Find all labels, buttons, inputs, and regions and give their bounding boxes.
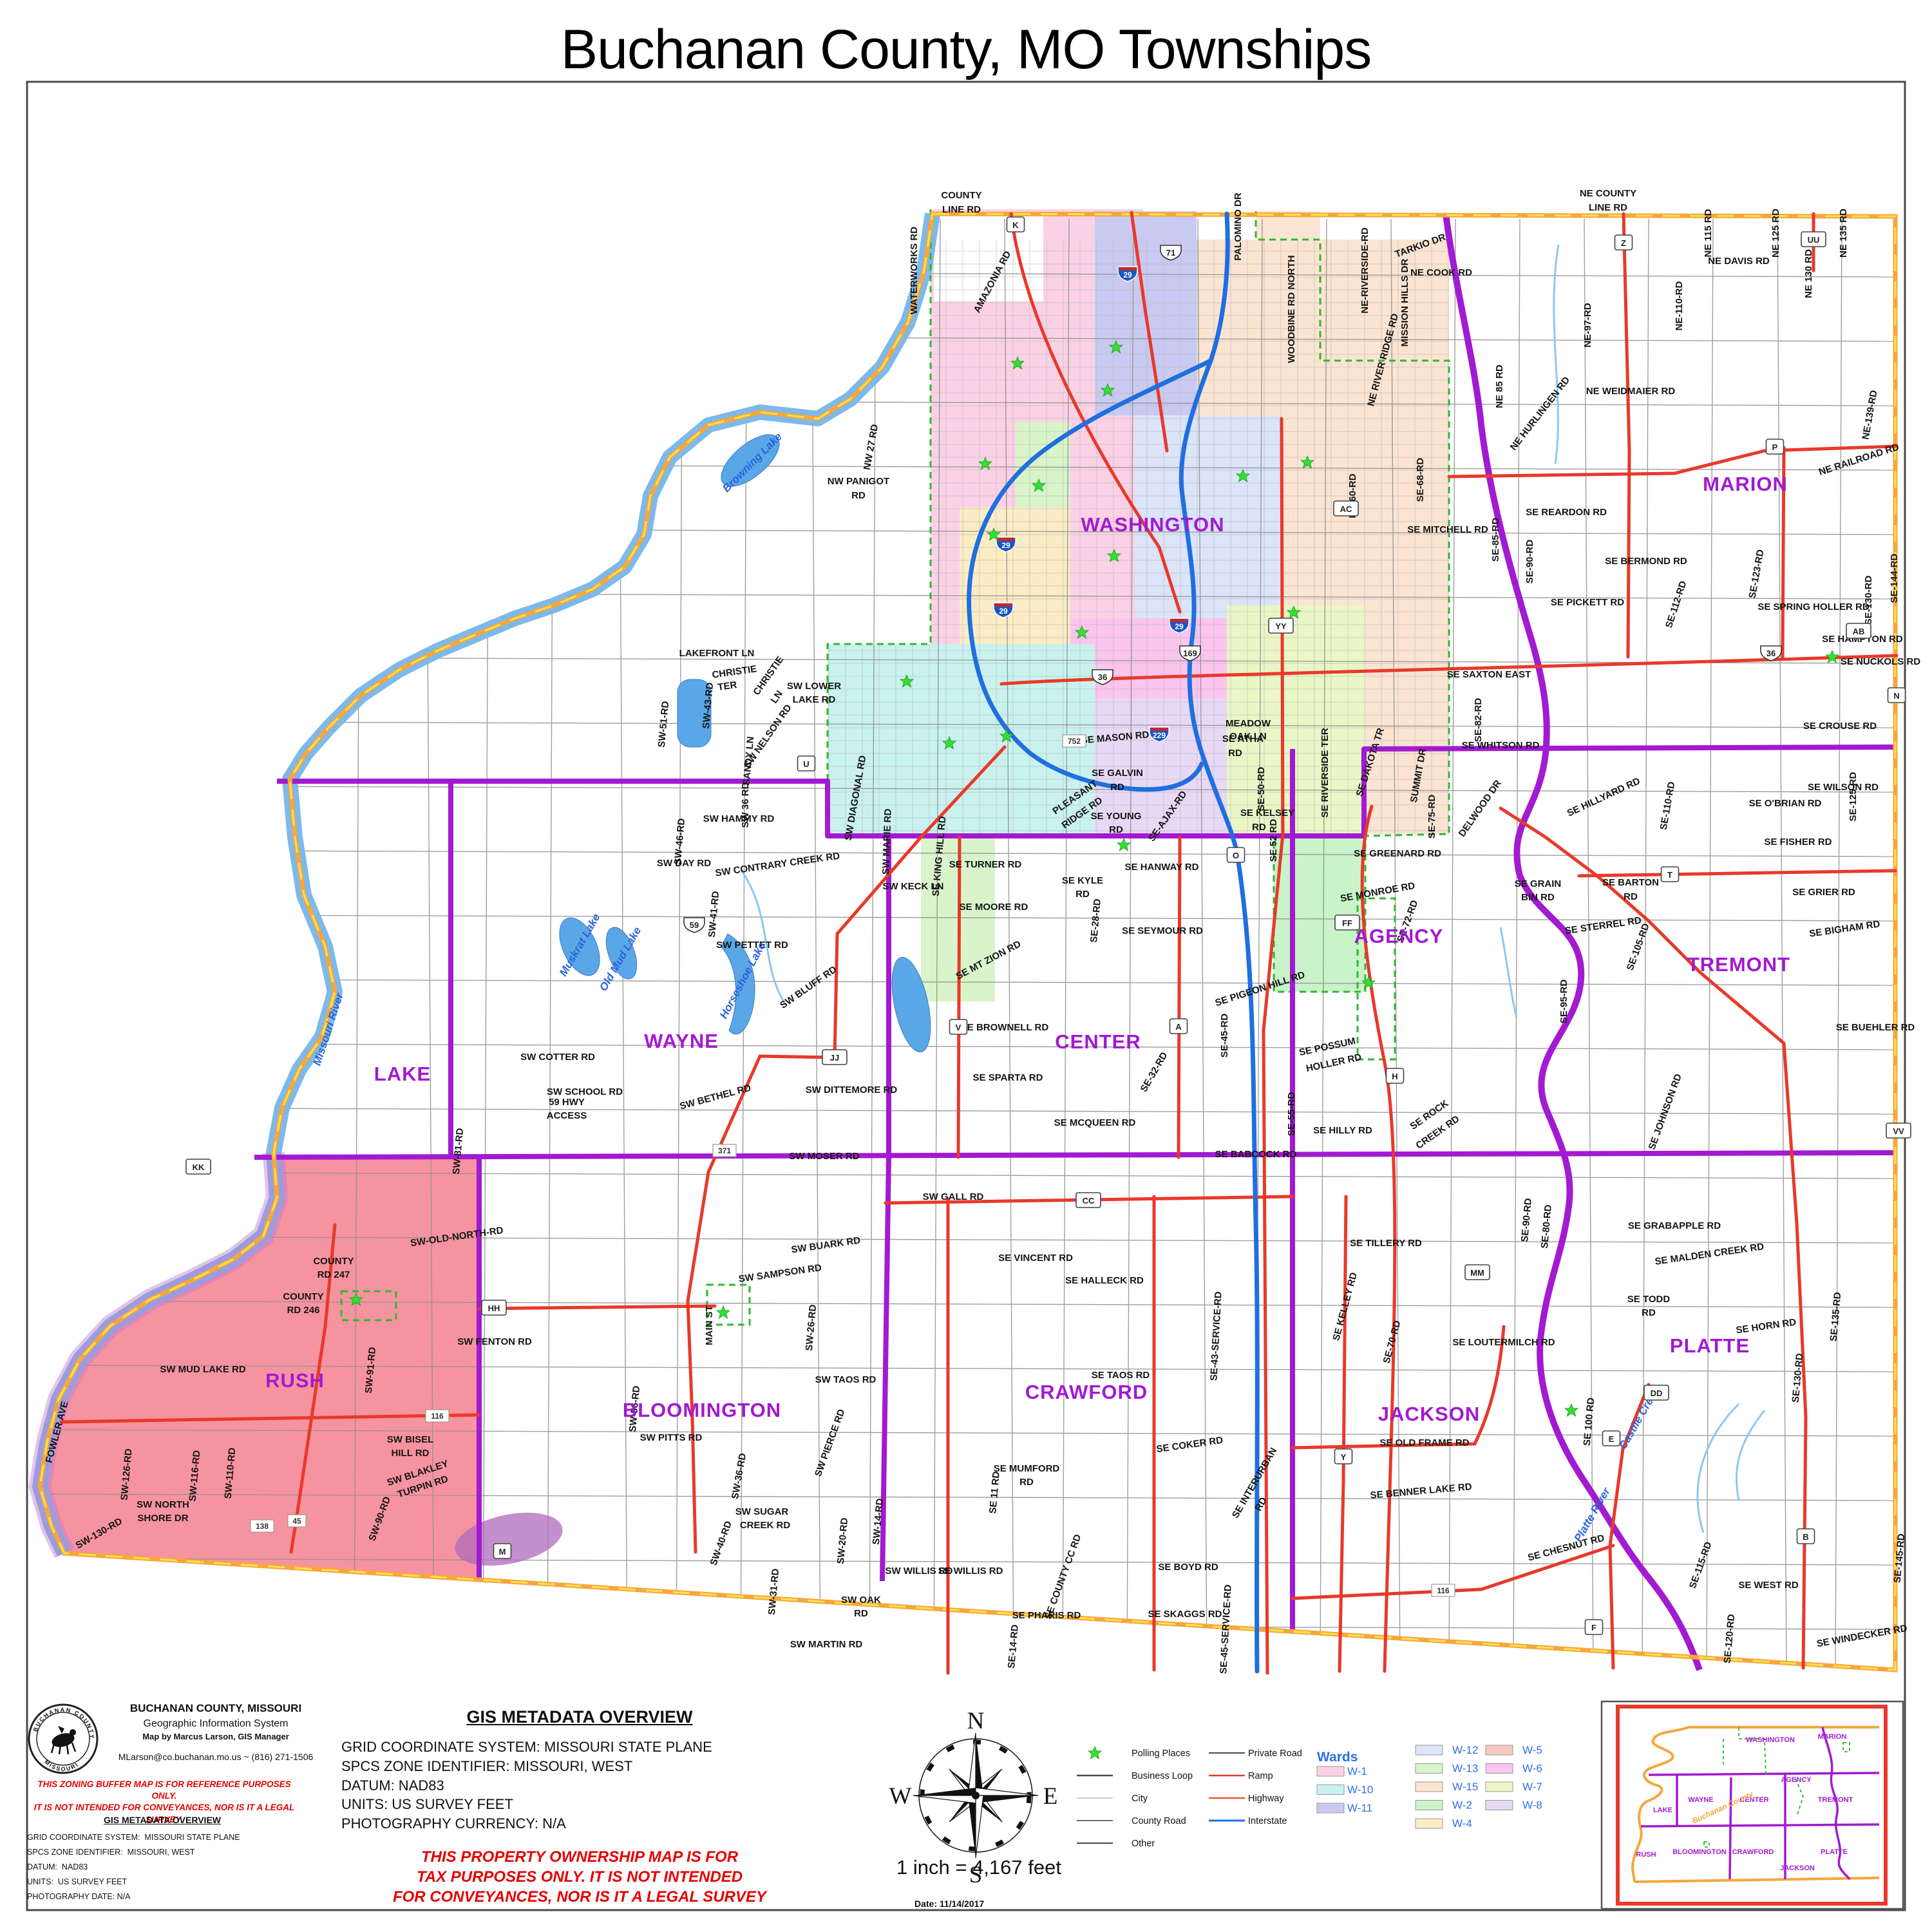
road-label: SE-55-RD (1286, 1092, 1297, 1137)
legend-label: Other (1132, 1839, 1155, 1849)
road-label: SE MCQUEEN RD (1054, 1117, 1136, 1128)
cmeta-units: UNITS: US SURVEY FEET (341, 1795, 818, 1814)
road-label: WATERWORKS RD (909, 227, 920, 314)
township-label: AGENCY (1354, 925, 1444, 947)
road-label: SE TILLERY RD (1350, 1238, 1422, 1249)
legend-label: Interstate (1248, 1816, 1287, 1826)
svg-text:29: 29 (1175, 622, 1184, 631)
legend: Polling PlacesBusiness LoopCityCounty Ro… (1077, 1747, 1302, 1849)
township-label: CENTER (1055, 1030, 1141, 1053)
route-marker: T (1662, 867, 1679, 882)
ward-label: W-6 (1522, 1763, 1542, 1775)
inset-township-label: BLOOMINGTON (1672, 1848, 1727, 1856)
route-marker: CC (1076, 1193, 1101, 1207)
meta-photo: PHOTOGRAPHY DATE: N/A (27, 1889, 298, 1904)
township-label: RUSH (265, 1369, 325, 1392)
legend-label: Private Road (1248, 1748, 1302, 1759)
road-label: NE COUNTY (1580, 188, 1636, 199)
road-label: SE HANWAY RD (1124, 862, 1198, 873)
legend-wards-header: Wards (1317, 1750, 1358, 1765)
road-label: SE SAXTON EAST (1447, 669, 1531, 680)
route-marker: M (494, 1544, 511, 1558)
road-label: LAKEFRONT LN (679, 648, 755, 659)
county-map: COUNTYLINE RDNE COUNTYLINE RDWATERWORKS … (0, 0, 1932, 1932)
svg-text:E: E (1609, 1434, 1615, 1444)
ward-label: W-4 (1452, 1817, 1472, 1830)
route-marker: 45 (288, 1515, 306, 1527)
cmeta-datum: DATUM: NAD83 (341, 1776, 818, 1795)
road-label: NE 125 RD (1770, 209, 1781, 258)
svg-text:MM: MM (1470, 1268, 1484, 1278)
svg-text:29: 29 (1001, 541, 1010, 550)
svg-text:752: 752 (1068, 737, 1081, 746)
road-label: MAIN ST (704, 1305, 715, 1345)
svg-text:M: M (499, 1547, 506, 1557)
road-label: SE HILLY RD (1313, 1125, 1372, 1136)
road-label: NE DAVIS RD (1708, 256, 1770, 267)
cmeta-grid: GRID COORDINATE SYSTEM: MISSOURI STATE P… (341, 1738, 818, 1757)
road-label: SW OAK (841, 1595, 881, 1605)
svg-text:H: H (1392, 1072, 1397, 1081)
road-label: RD 247 (317, 1269, 350, 1280)
zoning-warning-line1: THIS ZONING BUFFER MAP IS FOR REFERENCE … (26, 1779, 303, 1802)
road-label: SE GRIER RD (1792, 887, 1855, 898)
ward-label: W-11 (1347, 1802, 1372, 1814)
inset-township-label: MARION (1818, 1733, 1847, 1741)
svg-text:371: 371 (718, 1146, 731, 1155)
svg-text:229: 229 (1153, 731, 1166, 740)
inset-map: WASHINGTONMARIONAGENCYWAYNELAKECENTERTRE… (1602, 1701, 1903, 1909)
road-label: LINE RD (1589, 202, 1627, 213)
svg-text:29: 29 (1123, 270, 1132, 279)
compass-e: E (1043, 1783, 1058, 1810)
ward-swatch (1416, 1819, 1443, 1828)
center-metadata-header: GIS METADATA OVERVIEW (341, 1707, 818, 1728)
township-label: CRAWFORD (1025, 1381, 1148, 1403)
route-marker: AC (1334, 501, 1358, 516)
road-label: SE NUCKOLS RD (1841, 656, 1920, 667)
road-label: ACCESS (547, 1110, 587, 1121)
route-marker: 116 (426, 1410, 449, 1422)
road-label: RD (1252, 822, 1266, 833)
svg-text:T: T (1667, 870, 1672, 880)
road-label: SE-50-RD (1256, 767, 1267, 811)
township-label: MARION (1703, 473, 1788, 495)
inset-township-label: JACKSON (1780, 1864, 1815, 1872)
road-label: COUNTY (313, 1256, 354, 1267)
route-marker: N (1888, 688, 1906, 703)
svg-text:K: K (1012, 220, 1019, 230)
road-label: SE BOYD RD (1158, 1562, 1218, 1573)
route-marker: MM (1465, 1265, 1490, 1280)
route-marker: F (1586, 1620, 1603, 1634)
org-contact: MLarson@co.buchanan.mo.us ~ (816) 271-15… (109, 1752, 322, 1763)
center-metadata: GIS METADATA OVERVIEW GRID COORDINATE SY… (341, 1707, 818, 1833)
route-marker: UU (1801, 232, 1826, 247)
road-label: RD (1110, 782, 1124, 793)
road-label: SE BROWNELL RD (961, 1022, 1049, 1033)
ward-swatch (1486, 1782, 1513, 1792)
road-label: SW LOWER (787, 681, 841, 692)
svg-text:AC: AC (1340, 504, 1352, 514)
road-label: SE TURNER RD (949, 859, 1022, 870)
inset-township-label: PLATTE (1821, 1848, 1848, 1856)
road-label: SE BUEHLER RD (1836, 1022, 1915, 1033)
road-label: SE GREENARD RD (1354, 848, 1441, 859)
cmeta-spcs: SPCS ZONE IDENTIFIER: MISSOURI, WEST (341, 1757, 818, 1776)
road-label: NE-97-RD (1582, 303, 1593, 347)
road-label: SW SUGAR (735, 1506, 789, 1517)
svg-text:29: 29 (999, 607, 1008, 616)
inset-township-label: AGENCY (1781, 1776, 1812, 1784)
road-label: NE 135 RD (1838, 209, 1849, 258)
svg-text:P: P (1772, 442, 1778, 452)
svg-text:YY: YY (1275, 621, 1287, 631)
road-label: HILL RD (392, 1448, 430, 1459)
tax-warning: THIS PROPERTY OWNERSHIP MAP IS FOR TAX P… (309, 1847, 850, 1908)
meta-grid: GRID COORDINATE SYSTEM: MISSOURI STATE P… (27, 1830, 298, 1845)
road-label: SE-14-RD (1006, 1624, 1021, 1669)
road-label: SE BERMOND RD (1605, 556, 1687, 567)
ward-swatch (1416, 1782, 1443, 1792)
road-label: SW TAOS RD (815, 1374, 876, 1385)
svg-text:AB: AB (1853, 627, 1865, 636)
road-label: SE-90-RD (1524, 540, 1535, 584)
road-label: MEADOW (1226, 718, 1271, 729)
road-label: SE RIVERSIDE TER (1320, 728, 1331, 817)
road-label: COUNTY (941, 190, 981, 201)
ward-swatch (1317, 1766, 1344, 1776)
svg-text:71: 71 (1166, 248, 1175, 258)
svg-text:VV: VV (1893, 1126, 1904, 1136)
road-label: SE MITCHELL RD (1407, 524, 1488, 535)
road-label: SE MUMFORD (994, 1463, 1060, 1474)
road-label: NE-110-RD (1674, 281, 1685, 330)
org-author: Map by Marcus Larson, GIS Manager (109, 1732, 322, 1742)
legend-label: Business Loop (1132, 1771, 1193, 1781)
road-label: SE REARDON RD (1526, 507, 1607, 518)
legend-star-icon (1088, 1747, 1101, 1759)
road-label: SE-125-RD (1848, 772, 1859, 821)
ward-swatch (1317, 1803, 1344, 1813)
road-label: SE O'BRIAN RD (1749, 798, 1822, 809)
road-label: NE-RIVERSIDE-RD (1359, 227, 1370, 314)
road-label: SE-85-RD (1490, 518, 1501, 562)
route-marker: A (1170, 1019, 1188, 1034)
road-label: RD (1228, 748, 1242, 759)
svg-text:169: 169 (1183, 649, 1197, 658)
svg-text:Y: Y (1341, 1452, 1347, 1462)
road-label: SW HAMMY RD (703, 813, 775, 824)
road-label: SW MARTIN RD (790, 1639, 863, 1650)
svg-text:U: U (803, 759, 809, 769)
ward-label: W-8 (1522, 1799, 1542, 1812)
road-label: SE PICKETT RD (1551, 597, 1624, 608)
road-label: SE WILSON RD (1808, 782, 1879, 793)
road-label: COUNTY (283, 1291, 323, 1302)
ward-label: W-7 (1522, 1781, 1542, 1793)
legend-label: County Road (1132, 1816, 1186, 1826)
cmeta-currency: PHOTOGRAPHY CURRENCY: N/A (341, 1814, 818, 1833)
svg-text:V: V (956, 1023, 961, 1032)
svg-text:45: 45 (292, 1517, 301, 1526)
svg-text:116: 116 (1437, 1586, 1450, 1595)
map-sheet: { "title": "Buchanan County, MO Township… (0, 0, 1932, 1932)
svg-text:A: A (1175, 1022, 1182, 1032)
legend-label: Polling Places (1132, 1748, 1190, 1759)
road-label: SW FENTON RD (457, 1336, 532, 1347)
road-label: SE-45-RD (1219, 1014, 1230, 1058)
route-marker: 752 (1063, 735, 1086, 747)
svg-text:JJ: JJ (830, 1053, 839, 1063)
ward-swatch (1486, 1764, 1513, 1774)
road-label: SE SEYMOUR RD (1122, 925, 1203, 936)
ward-swatch (1416, 1801, 1443, 1810)
svg-text:116: 116 (431, 1412, 444, 1421)
svg-text:138: 138 (256, 1522, 269, 1531)
route-marker: HH (482, 1300, 506, 1315)
left-metadata-header: GIS METADATA OVERVIEW (27, 1815, 298, 1826)
tax-warning-line1: THIS PROPERTY OWNERSHIP MAP IS FOR (309, 1847, 850, 1867)
svg-text:59: 59 (690, 920, 699, 930)
road-label: SW MOSER RD (789, 1151, 859, 1162)
road-label: SW NORTH (137, 1499, 189, 1510)
route-marker: Z (1615, 235, 1633, 250)
route-marker: YY (1269, 618, 1293, 633)
road-label: SE-144-RD (1889, 553, 1900, 603)
route-marker: H (1387, 1068, 1404, 1083)
road-label: NE 85 RD (1494, 365, 1505, 408)
route-marker: 138 (251, 1520, 274, 1532)
road-label: SE-130-RD (1863, 575, 1874, 625)
ward-label: W-15 (1452, 1781, 1478, 1793)
road-label: BIN RD (1521, 892, 1555, 903)
ward-label: W-1 (1347, 1765, 1367, 1777)
ward-swatch (1317, 1785, 1344, 1795)
road-label: SE-95-RD (1558, 980, 1569, 1024)
road-label: SE OLD FRAME RD (1379, 1437, 1469, 1448)
township-label: JACKSON (1378, 1403, 1481, 1425)
inset-township-label: TREMONT (1818, 1796, 1853, 1804)
road-label: LAKE RD (793, 694, 836, 705)
road-label: SW DITTEMORE RD (806, 1084, 898, 1095)
road-label: NE WEIDMAIER RD (1586, 386, 1676, 397)
ward-swatch (1486, 1801, 1513, 1810)
road-label: SE-75-RD (1426, 795, 1437, 839)
ward-swatch (1416, 1745, 1443, 1755)
road-label: SE SKAGGS RD (1148, 1609, 1222, 1620)
svg-text:F: F (1591, 1623, 1596, 1633)
ward-label: W-10 (1347, 1784, 1373, 1796)
tax-warning-line2: TAX PURPOSES ONLY. IT IS NOT INTENDED (309, 1867, 850, 1887)
route-marker: B (1797, 1529, 1815, 1544)
inset-township-label: CRAWFORD (1732, 1848, 1774, 1856)
road-label: SE 52 RD (1268, 819, 1279, 862)
svg-text:DD: DD (1651, 1388, 1663, 1398)
road-label: 59 HWY (549, 1097, 585, 1108)
ward-label: W-2 (1452, 1799, 1472, 1812)
date-text: Date: 11/14/2017 (914, 1899, 984, 1909)
township-label: BLOOMINGTON (623, 1399, 781, 1421)
svg-text:B: B (1803, 1532, 1808, 1542)
route-marker: DD (1644, 1385, 1669, 1400)
route-marker: E (1603, 1431, 1620, 1446)
org-dept: Geographic Information System (109, 1718, 322, 1730)
route-marker: FF (1335, 915, 1359, 930)
road-label: SE KELSEY (1240, 808, 1294, 819)
route-marker: KK (186, 1159, 211, 1174)
inset-township-label: WAYNE (1688, 1796, 1713, 1804)
road-label: SE PHARIS RD (1012, 1610, 1081, 1621)
ward-label: W-13 (1452, 1763, 1478, 1775)
road-label: SE-82-RD (1473, 698, 1484, 743)
road-label: CREEK RD (740, 1520, 791, 1531)
route-marker: AB (1846, 623, 1871, 638)
road-label: SW MUD LAKE RD (160, 1364, 245, 1375)
org-name: BUCHANAN COUNTY, MISSOURI (109, 1701, 322, 1715)
svg-text:UU: UU (1808, 235, 1820, 245)
road-label: RD (1075, 889, 1090, 900)
road-label: SE ATHA (1222, 734, 1264, 744)
road-label: NE 115 RD (1703, 209, 1714, 257)
road-label: SE BABCOCK RD (1215, 1149, 1297, 1160)
inset-township-label: WASHINGTON (1746, 1736, 1795, 1744)
road-label: SE BARTON (1602, 877, 1659, 888)
road-label: SW BISEL (387, 1434, 434, 1445)
compass-w: W (889, 1783, 912, 1810)
road-label: RD (1109, 824, 1123, 835)
inset-township-label: RUSH (1636, 1851, 1656, 1859)
svg-text:N: N (1893, 691, 1899, 701)
route-marker: VV (1886, 1123, 1911, 1138)
road-label: SW 36 RD (740, 782, 751, 828)
compass-n: N (967, 1708, 985, 1734)
township-label: LAKE (374, 1063, 431, 1085)
township-label: TREMONT (1687, 953, 1790, 976)
road-label: SE KYLE (1062, 875, 1103, 886)
route-marker: 371 (713, 1144, 736, 1157)
road-label: NE COOK RD (1410, 267, 1472, 278)
county-seal-logo: BUCHANAN COUNTY MISSOURI (29, 1705, 97, 1773)
road-label: SW MARIE RD (880, 808, 894, 875)
ward-label: W-5 (1522, 1744, 1542, 1756)
road-label: SE YOUNG (1091, 811, 1142, 822)
road-label: RD 246 (287, 1305, 320, 1316)
road-label: NE 130 RD (1803, 249, 1814, 298)
route-marker: U (798, 756, 815, 771)
road-label: SE MOORE RD (960, 902, 1028, 913)
tax-warning-line3: FOR CONVEYANCES, NOR IS IT A LEGAL SURVE… (309, 1887, 850, 1907)
svg-text:HH: HH (488, 1303, 500, 1313)
route-marker: P (1766, 439, 1784, 454)
road-label: SW DAY RD (657, 858, 711, 869)
road-label: WOODBINE RD NORTH (1286, 255, 1297, 363)
svg-text:CC: CC (1083, 1196, 1095, 1206)
road-label: SE GRAIN (1515, 878, 1562, 889)
legend-label: City (1132, 1794, 1148, 1804)
road-label: SE VINCENT RD (998, 1253, 1073, 1264)
scale-text: 1 inch = 4,167 feet (882, 1856, 1075, 1879)
road-label: PALOMINO DR (1233, 193, 1244, 261)
road-label: SE WEST RD (1738, 1580, 1799, 1591)
route-marker: K (1007, 217, 1025, 232)
road-label: RD (1019, 1477, 1034, 1488)
township-label: WAYNE (644, 1030, 719, 1052)
ward-label: W-12 (1452, 1744, 1478, 1756)
road-label: SE TAOS RD (1092, 1370, 1150, 1381)
left-org-panel: BUCHANAN COUNTY, MISSOURI Geographic Inf… (109, 1701, 322, 1763)
road-label: RD (1624, 891, 1638, 902)
road-label: SE HALLECK RD (1065, 1275, 1144, 1286)
road-label: RD (854, 1608, 868, 1619)
road-label: SE TODD (1627, 1294, 1671, 1305)
township-label: PLATTE (1670, 1334, 1750, 1357)
road-label: RD (851, 490, 866, 501)
route-marker: JJ (822, 1050, 847, 1065)
road-label: SW SCHOOL RD (547, 1086, 623, 1097)
road-label: SHORE DR (137, 1513, 188, 1524)
svg-text:KK: KK (193, 1162, 205, 1172)
road-label: SE LOUTERMILCH RD (1452, 1337, 1555, 1348)
road-label: SE WILLIS RD (938, 1566, 1003, 1577)
road-label: LINE RD (942, 204, 981, 215)
road-label: SE FISHER RD (1764, 837, 1832, 848)
route-marker: 116 (1432, 1584, 1455, 1596)
meta-units: UNITS: US SURVEY FEET (27, 1875, 298, 1889)
ward-swatch (1416, 1764, 1443, 1774)
road-label: MISSION HILLS DR (1399, 258, 1410, 346)
road-label: SW PITTS RD (640, 1432, 703, 1443)
meta-datum: DATUM: NAD83 (27, 1860, 298, 1875)
inset-township-label: LAKE (1653, 1806, 1672, 1814)
legend-label: Highway (1248, 1794, 1284, 1804)
ward-swatch (1486, 1745, 1513, 1755)
svg-text:36: 36 (1766, 649, 1776, 658)
road-label: SE GALVIN (1092, 768, 1143, 779)
road-label: SW GALL RD (923, 1191, 984, 1202)
meta-spcs: SPCS ZONE IDENTIFIER: MISSOURI, WEST (27, 1845, 298, 1860)
left-metadata: GIS METADATA OVERVIEW GRID COORDINATE SY… (27, 1815, 298, 1904)
legend-label: Ramp (1248, 1771, 1273, 1781)
road-label: SE SPARTA RD (973, 1072, 1043, 1083)
road-label: NW PANIGOT (828, 476, 889, 487)
road-label: RD (1642, 1307, 1656, 1318)
svg-text:Z: Z (1621, 238, 1626, 248)
road-label: SE SPRING HOLLER RD (1757, 601, 1870, 612)
svg-text:O: O (1233, 851, 1239, 860)
svg-text:FF: FF (1342, 918, 1352, 928)
road-label: SE-68-RD (1415, 458, 1426, 502)
route-marker: O (1227, 848, 1245, 862)
route-marker: V (950, 1019, 967, 1034)
township-label: WASHINGTON (1081, 513, 1225, 536)
route-marker: Y (1335, 1449, 1352, 1464)
svg-text:36: 36 (1098, 672, 1107, 682)
road-label: SE CROUSE RD (1803, 721, 1877, 732)
road-label: SE GRABAPPLE RD (1628, 1220, 1721, 1231)
road-label: SW COTTER RD (520, 1052, 595, 1063)
